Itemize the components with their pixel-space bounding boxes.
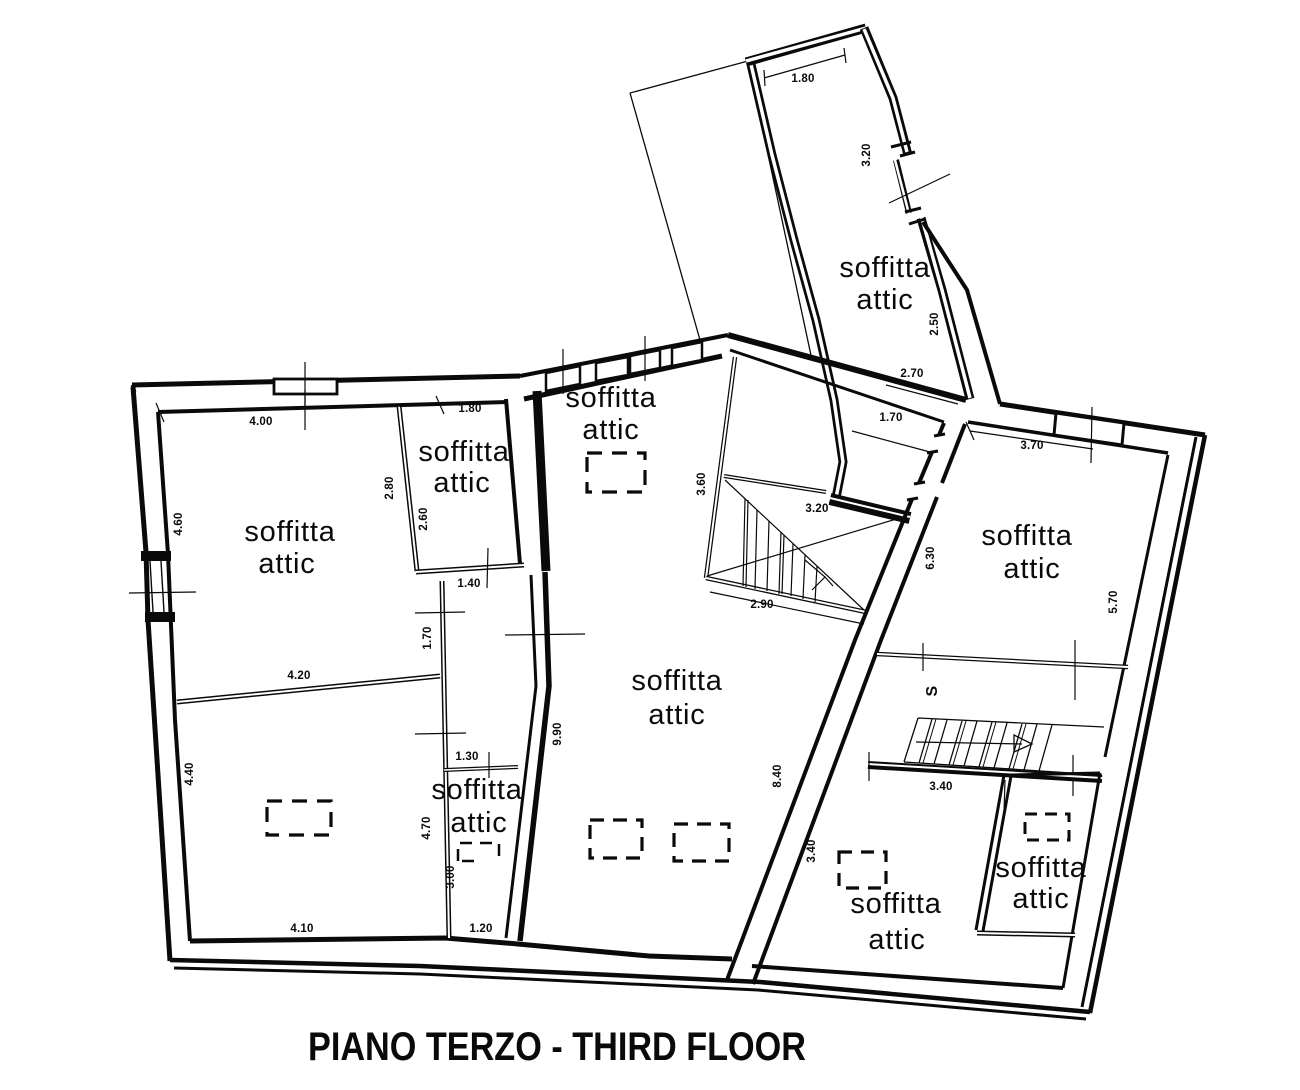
svg-text:PIANO TERZO - THIRD FLOOR: PIANO TERZO - THIRD FLOOR [308, 1025, 806, 1069]
svg-text:attic: attic [582, 414, 639, 446]
svg-text:2.90: 2.90 [750, 599, 773, 611]
svg-text:3.40: 3.40 [929, 781, 952, 793]
svg-text:4.00: 4.00 [249, 416, 272, 428]
svg-text:soffitta: soffitta [631, 665, 722, 697]
svg-text:2.70: 2.70 [900, 368, 923, 380]
svg-text:attic: attic [648, 699, 705, 731]
svg-text:2.60: 2.60 [418, 507, 430, 530]
svg-text:9.90: 9.90 [552, 722, 564, 745]
svg-text:attic: attic [1003, 553, 1060, 585]
svg-text:4.40: 4.40 [184, 762, 196, 785]
svg-text:1.80: 1.80 [791, 73, 814, 85]
svg-text:attic: attic [856, 284, 913, 316]
svg-text:1.70: 1.70 [422, 626, 434, 649]
svg-text:3.20: 3.20 [805, 503, 828, 515]
svg-text:soffitta: soffitta [981, 520, 1072, 552]
svg-text:soffitta: soffitta [565, 382, 656, 414]
svg-text:4.60: 4.60 [173, 512, 185, 535]
svg-text:soffitta: soffitta [995, 852, 1086, 884]
svg-text:3.60: 3.60 [696, 472, 708, 495]
svg-text:soffitta: soffitta [244, 516, 335, 548]
svg-text:8.40: 8.40 [772, 764, 784, 787]
svg-text:soffitta: soffitta [850, 888, 941, 920]
svg-text:S: S [924, 685, 941, 696]
svg-text:1.20: 1.20 [469, 923, 492, 935]
svg-text:soffitta: soffitta [839, 252, 930, 284]
svg-text:3.40: 3.40 [806, 839, 818, 862]
svg-text:attic: attic [1012, 883, 1069, 915]
svg-text:5.70: 5.70 [1108, 590, 1120, 613]
svg-text:1.30: 1.30 [455, 751, 478, 763]
svg-text:6.30: 6.30 [925, 546, 937, 569]
svg-text:3.00: 3.00 [445, 865, 457, 888]
svg-text:attic: attic [450, 807, 507, 839]
svg-text:soffitta: soffitta [418, 436, 509, 468]
svg-text:1.70: 1.70 [879, 412, 902, 424]
svg-text:attic: attic [258, 548, 315, 580]
svg-text:attic: attic [433, 467, 490, 499]
svg-text:2.80: 2.80 [384, 476, 396, 499]
svg-text:3.70: 3.70 [1020, 440, 1043, 452]
svg-text:1.80: 1.80 [458, 403, 481, 415]
svg-text:soffitta: soffitta [431, 774, 522, 806]
svg-text:3.20: 3.20 [861, 143, 873, 166]
svg-text:2.50: 2.50 [929, 312, 941, 335]
svg-text:4.70: 4.70 [421, 816, 433, 839]
svg-text:attic: attic [868, 924, 925, 956]
svg-text:4.10: 4.10 [290, 923, 313, 935]
svg-text:4.20: 4.20 [287, 670, 310, 682]
svg-text:1.40: 1.40 [457, 578, 480, 590]
